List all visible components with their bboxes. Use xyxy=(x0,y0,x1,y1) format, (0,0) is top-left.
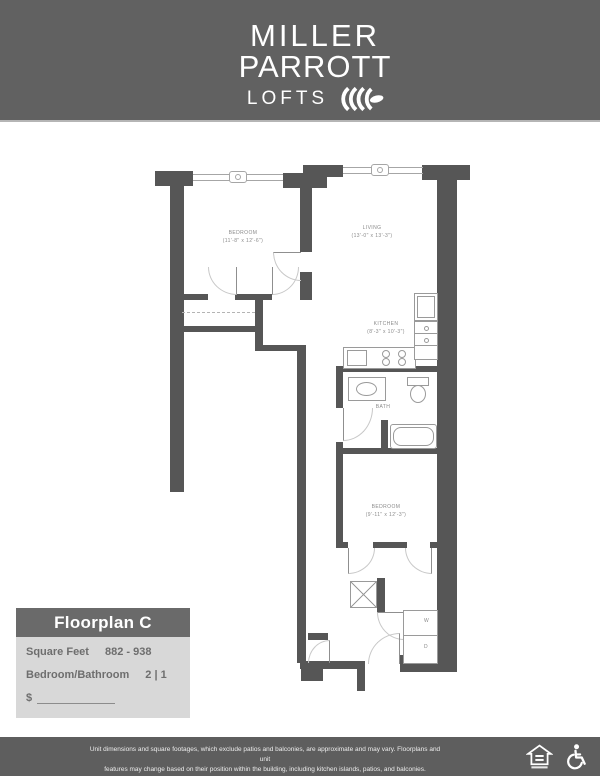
door-arc xyxy=(208,267,237,295)
window-mullion xyxy=(371,164,389,176)
living-label: LIVING (13'-0" x 13'-3") xyxy=(322,224,422,240)
info-box: Floorplan C Square Feet 882 - 938 Bedroo… xyxy=(16,608,190,718)
bed-bath-value: 2 | 1 xyxy=(145,669,166,681)
wall xyxy=(373,542,407,548)
wall xyxy=(255,294,263,351)
bath-label: BATH xyxy=(368,403,398,411)
price-prefix: $ xyxy=(26,692,32,704)
door-arc xyxy=(343,408,373,441)
wall xyxy=(303,165,343,177)
entry-door-arc xyxy=(368,633,400,664)
wall xyxy=(180,326,257,332)
kitchen-counter xyxy=(414,345,438,360)
floorplan-flyer: MILLER PARROTT LOFTS xyxy=(0,0,600,776)
floorplan-title: Floorplan C xyxy=(16,608,190,637)
closet-rod xyxy=(182,312,255,313)
accessibility-icon xyxy=(563,743,588,771)
square-feet-row: Square Feet 882 - 938 xyxy=(26,646,180,658)
bathtub-inner xyxy=(393,427,434,446)
range-burner xyxy=(382,358,390,366)
wall xyxy=(357,669,365,691)
equal-housing-icon xyxy=(526,744,553,771)
price-blank-line xyxy=(37,693,115,704)
wall xyxy=(336,542,348,548)
toilet-bowl xyxy=(410,385,426,403)
wall xyxy=(437,165,457,672)
footer-bar: Unit dimensions and square footages, whi… xyxy=(0,737,600,776)
wall xyxy=(377,578,385,612)
refrigerator-inner xyxy=(417,296,435,318)
wall xyxy=(301,669,323,681)
wall xyxy=(336,448,343,548)
bedroom2-label: BEDROOM (9'-11" x 12'-3") xyxy=(346,503,426,519)
info-box-body: Square Feet 882 - 938 Bedroom/Bathroom 2… xyxy=(16,637,190,718)
price-row: $ xyxy=(26,692,180,704)
range-burner xyxy=(382,350,390,358)
washer-dryer-divider xyxy=(403,635,438,636)
door-arc xyxy=(405,548,432,574)
kitchen-label: KITCHEN (8'-3" x 10'-3") xyxy=(346,320,426,336)
wall xyxy=(180,294,208,300)
range-burner xyxy=(398,350,406,358)
vanity-sink xyxy=(356,382,377,396)
door-arc xyxy=(348,548,375,574)
wall xyxy=(336,366,343,408)
wall xyxy=(297,345,306,663)
bedroom1-label: BEDROOM (11'-8" x 12'-6") xyxy=(193,229,293,245)
bed-bath-row: Bedroom/Bathroom 2 | 1 xyxy=(26,669,180,681)
dryer-label: D xyxy=(424,644,428,650)
shelf-x-box xyxy=(350,581,377,608)
bed-bath-label: Bedroom/Bathroom xyxy=(26,669,129,681)
wall xyxy=(300,186,312,252)
washer-dryer-closet xyxy=(403,610,438,664)
disclaimer-text: Unit dimensions and square footages, whi… xyxy=(85,745,445,775)
wall xyxy=(308,633,328,640)
square-feet-value: 882 - 938 xyxy=(105,646,151,658)
kitchen-sink xyxy=(347,350,367,366)
range-burner xyxy=(398,358,406,366)
washer-label: W xyxy=(424,618,429,624)
wall xyxy=(300,272,312,300)
wall xyxy=(235,294,272,300)
square-feet-label: Square Feet xyxy=(26,646,89,658)
window-mullion xyxy=(229,171,247,183)
door-arc xyxy=(308,640,330,663)
